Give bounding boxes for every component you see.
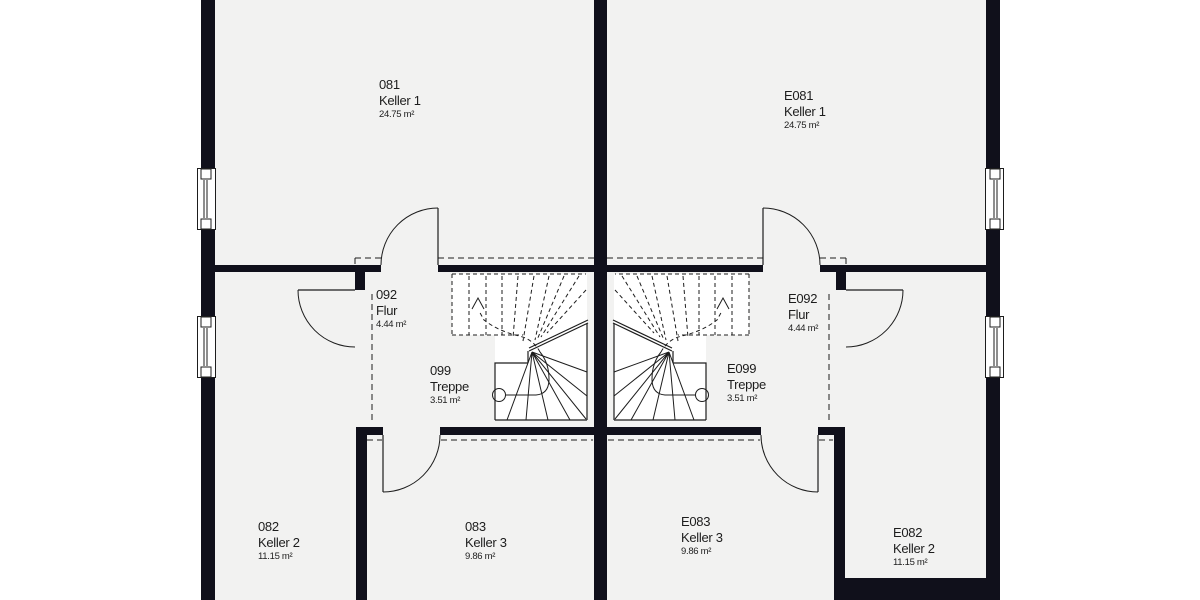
room-name: Keller 1 <box>784 105 826 119</box>
room-label-E082: E082 Keller 2 11.15 m² <box>893 524 935 569</box>
room-number: E092 <box>788 290 818 308</box>
left-exterior-wall <box>201 0 215 600</box>
room-name: Keller 3 <box>465 536 507 550</box>
keller-divider-wall <box>356 427 367 600</box>
room-number: E081 <box>784 87 826 105</box>
right-exterior-wall <box>986 0 1000 600</box>
room-label-E083: E083 Keller 3 9.86 m² <box>681 513 723 558</box>
wall-stub <box>355 272 365 290</box>
room-area: 3.51 m² <box>430 394 469 407</box>
room-label-082: 082 Keller 2 11.15 m² <box>258 518 300 563</box>
wall-segment <box>440 427 594 435</box>
wall-segment <box>607 265 763 272</box>
party-wall <box>594 0 607 600</box>
room-area: 24.75 m² <box>379 108 421 121</box>
room-name: Keller 2 <box>258 536 300 550</box>
room-area: 4.44 m² <box>788 322 818 335</box>
room-area: 9.86 m² <box>681 545 723 558</box>
room-name: Treppe <box>430 380 469 394</box>
room-name: Keller 1 <box>379 94 421 108</box>
room-label-099: 099 Treppe 3.51 m² <box>430 362 469 407</box>
room-number: 083 <box>465 518 507 536</box>
wall-segment <box>820 265 986 272</box>
room-number: 081 <box>379 76 421 94</box>
keller-divider-wall <box>834 427 845 600</box>
room-label-E099: E099 Treppe 3.51 m² <box>727 360 766 405</box>
room-name: Keller 3 <box>681 531 723 545</box>
room-name: Treppe <box>727 378 766 392</box>
room-label-081: 081 Keller 1 24.75 m² <box>379 76 421 121</box>
room-name: Flur <box>788 308 818 322</box>
window <box>197 168 216 230</box>
room-name: Keller 2 <box>893 542 935 556</box>
room-number: E099 <box>727 360 766 378</box>
room-area: 11.15 m² <box>893 556 935 569</box>
room-area: 9.86 m² <box>465 550 507 563</box>
floor-plan-drawing <box>0 0 1200 600</box>
room-number: 099 <box>430 362 469 380</box>
room-area: 3.51 m² <box>727 392 766 405</box>
bottom-exterior-wall <box>845 578 1000 600</box>
room-label-E081: E081 Keller 1 24.75 m² <box>784 87 826 132</box>
window <box>985 168 1004 230</box>
wall-segment <box>215 265 381 272</box>
room-number: 092 <box>376 286 406 304</box>
room-area: 11.15 m² <box>258 550 300 563</box>
room-area: 4.44 m² <box>376 318 406 331</box>
room-label-092: 092 Flur 4.44 m² <box>376 286 406 331</box>
room-label-083: 083 Keller 3 9.86 m² <box>465 518 507 563</box>
room-name: Flur <box>376 304 406 318</box>
window <box>197 316 216 378</box>
room-number: E083 <box>681 513 723 531</box>
window <box>985 316 1004 378</box>
floor-plan-canvas: 081 Keller 1 24.75 m² 092 Flur 4.44 m² 0… <box>0 0 1200 600</box>
wall-stub <box>836 272 846 290</box>
wall-segment <box>438 265 594 272</box>
room-area: 24.75 m² <box>784 119 826 132</box>
room-number: 082 <box>258 518 300 536</box>
room-label-E092: E092 Flur 4.44 m² <box>788 290 818 335</box>
room-number: E082 <box>893 524 935 542</box>
wall-segment <box>607 427 761 435</box>
